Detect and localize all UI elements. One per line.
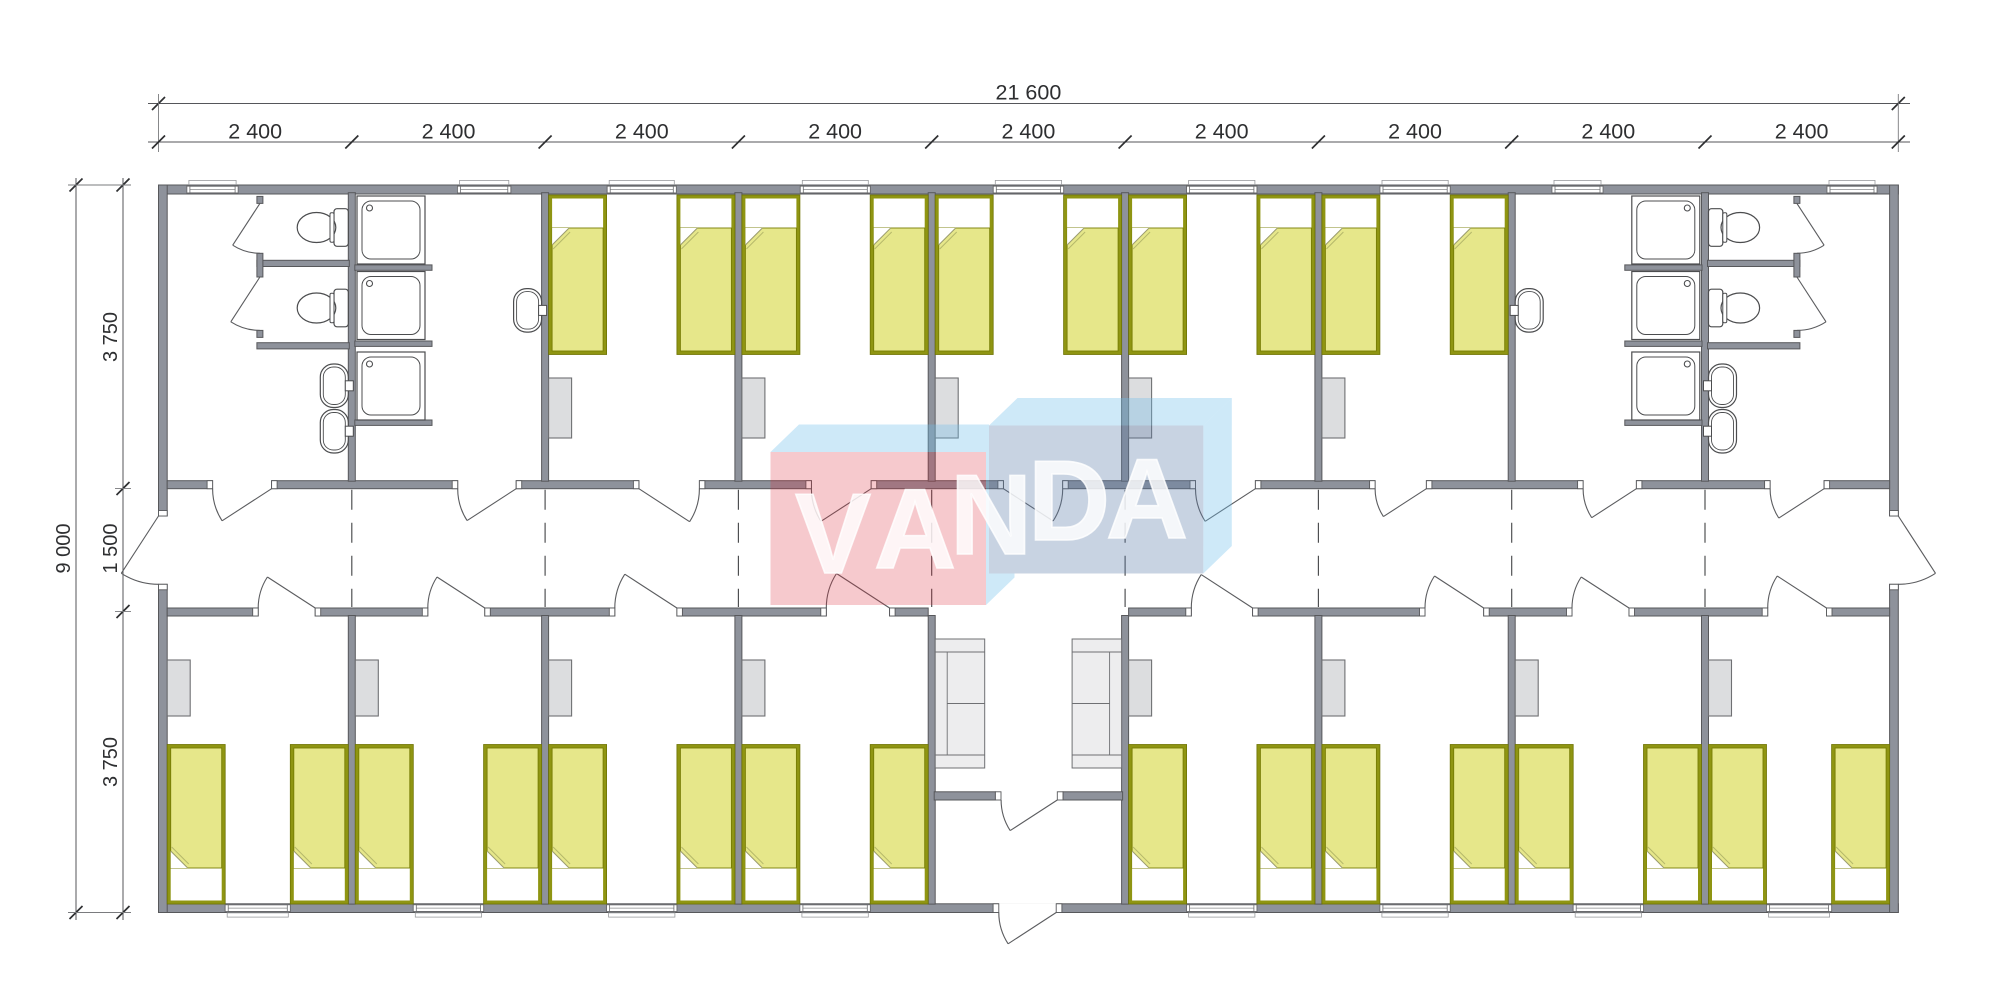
svg-text:A: A [874,466,956,593]
svg-text:2 400: 2 400 [1775,120,1829,144]
svg-text:D: D [1028,438,1110,565]
svg-text:2 400: 2 400 [1388,120,1442,144]
svg-text:2 400: 2 400 [1001,120,1055,144]
svg-text:2 400: 2 400 [1581,120,1635,144]
svg-text:9 000: 9 000 [53,523,75,573]
svg-text:1 500: 1 500 [100,523,122,573]
svg-text:V: V [795,471,871,598]
svg-text:3 750: 3 750 [100,737,122,787]
svg-text:21 600: 21 600 [996,81,1062,105]
svg-text:2 400: 2 400 [1195,120,1249,144]
svg-text:A: A [1106,436,1188,563]
svg-text:2 400: 2 400 [615,120,669,144]
svg-text:2 400: 2 400 [808,120,862,144]
svg-text:2 400: 2 400 [228,120,282,144]
svg-text:N: N [950,452,1032,579]
svg-text:2 400: 2 400 [422,120,476,144]
svg-text:3 750: 3 750 [100,312,122,362]
